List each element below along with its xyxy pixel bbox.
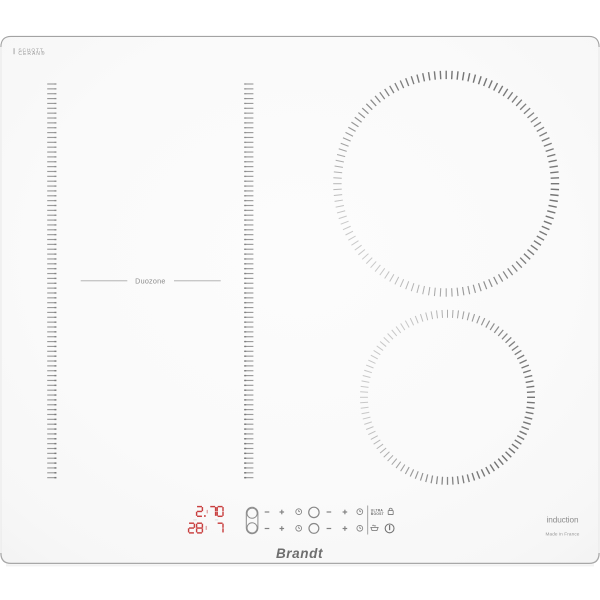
svg-text:induction: induction: [547, 515, 579, 524]
svg-text:Brandt: Brandt: [276, 546, 323, 561]
svg-text:BOOST: BOOST: [371, 512, 385, 516]
svg-text:Duozone: Duozone: [135, 276, 166, 285]
svg-text:Made in France: Made in France: [546, 532, 580, 537]
svg-text:CERAN®: CERAN®: [18, 50, 45, 57]
